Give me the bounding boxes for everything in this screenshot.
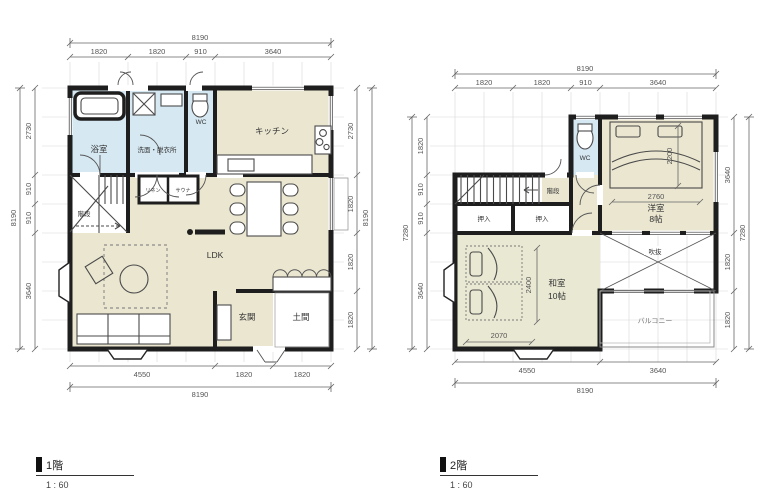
- floor1-room-fills: [70, 88, 331, 349]
- room-label-wc: WC: [196, 119, 207, 126]
- dim-right-total: 7280: [738, 225, 747, 242]
- dim-right-seg: 1820: [346, 312, 355, 329]
- floor2-plan: 8190 1820 1820 910 3640 7280 1820 910 91…: [401, 64, 754, 395]
- chair-icon: [230, 203, 245, 215]
- dim-top-seg: 910: [579, 78, 592, 87]
- bay-window-icon: [107, 349, 148, 359]
- dim-left-seg: 2730: [24, 123, 33, 140]
- room-label-doma: 土間: [292, 312, 309, 322]
- vanity-icon: [161, 94, 182, 106]
- room-label-ldk: LDK: [207, 250, 224, 260]
- floor2-legend: 2階 1 : 60: [440, 457, 538, 490]
- bedroom-window-icon: [664, 115, 702, 120]
- floor2-legend-scale: 1 : 60: [450, 480, 473, 490]
- dim-top-seg: 3640: [265, 47, 282, 56]
- chair-icon: [230, 222, 245, 234]
- room-label-wc: WC: [580, 155, 591, 162]
- room-label-stairs: 階段: [78, 209, 92, 218]
- dining-table-icon: [247, 182, 281, 236]
- closet-label-sauna: サウナ: [175, 187, 190, 194]
- floor2-legend-label: 2階: [450, 458, 467, 472]
- dim-left-seg: 910: [416, 212, 425, 225]
- chair-icon: [283, 203, 298, 215]
- floor1-legend-scale: 1 : 60: [46, 480, 69, 490]
- dim-top-total: 8190: [577, 64, 594, 73]
- dim-right-seg: 3640: [723, 167, 732, 184]
- dim-bottom-total: 8190: [192, 390, 209, 399]
- room-label-kitchen: キッチン: [255, 126, 289, 136]
- dim-top-seg: 1820: [149, 47, 166, 56]
- legend-marker: [440, 457, 446, 472]
- dim-futon-width: 2070: [491, 331, 508, 340]
- room-label-void: 吹抜: [649, 247, 663, 256]
- hall-floor: [571, 175, 600, 233]
- kitchen-window-icon: [252, 86, 304, 91]
- dim-futon-length: 2400: [524, 277, 533, 294]
- dim-right-seg: 1820: [723, 312, 732, 329]
- room-label-entrance: 玄関: [238, 312, 255, 322]
- dim-bed-width: 2760: [648, 192, 665, 201]
- wc-window-icon: [576, 115, 595, 120]
- dim-left-seg: 3640: [24, 283, 33, 300]
- dim-bottom-seg: 3640: [650, 366, 667, 375]
- dim-bottom-seg: 4550: [519, 366, 536, 375]
- chair-icon: [230, 184, 245, 196]
- dim-left-total: 8190: [9, 210, 18, 227]
- chair-icon: [283, 222, 298, 234]
- closet-label-linen: リネン: [145, 188, 160, 194]
- dim-left-seg: 1820: [416, 138, 425, 155]
- dim-bottom-seg: 1820: [236, 370, 253, 379]
- floorplan-drawing: 8190 1820 1820 910 3640 8190 2730 910 91…: [0, 0, 766, 500]
- entry-storage-icon: [217, 305, 231, 340]
- dim-top-seg: 910: [194, 47, 207, 56]
- dim-top-seg: 1820: [91, 47, 108, 56]
- chair-icon: [283, 184, 298, 196]
- dim-left-seg: 3640: [416, 283, 425, 300]
- closet-label-oshiire: 押入: [536, 214, 550, 223]
- bay-window-icon: [444, 262, 455, 303]
- room-label-western-size: 8帖: [649, 214, 663, 224]
- dim-right-seg: 1820: [723, 254, 732, 271]
- dim-right-seg: 1820: [346, 254, 355, 271]
- dim-bottom-seg: 1820: [294, 370, 311, 379]
- bath-window-icon: [68, 98, 73, 135]
- room-label-western: 洋室: [647, 203, 665, 213]
- dim-bed-length: 2200: [665, 148, 674, 165]
- dim-left-seg: 910: [24, 183, 33, 196]
- dim-top-total: 8190: [192, 33, 209, 42]
- kitchen-side-window-icon: [329, 96, 334, 130]
- closet-label-oshiire: 押入: [478, 214, 492, 223]
- room-label-japanese-size: 10帖: [548, 291, 566, 301]
- room-label-bath: 浴室: [90, 144, 108, 154]
- bedroom-side-window-icon: [714, 152, 719, 202]
- dim-right-total: 8190: [361, 210, 370, 227]
- dim-right-seg: 1820: [346, 196, 355, 213]
- room-label-japanese: 和室: [548, 278, 566, 288]
- room-label-balcony: バルコニー: [638, 317, 673, 325]
- casement-window-icon: [118, 72, 203, 85]
- floorplan-canvas: 8190 1820 1820 910 3640 8190 2730 910 91…: [0, 0, 766, 500]
- ldk-window-icon: [329, 178, 334, 230]
- floor1-plan: 8190 1820 1820 910 3640 8190 2730 910 91…: [9, 33, 377, 399]
- dim-top-seg: 3640: [650, 78, 667, 87]
- room-label-stairs: 階段: [547, 186, 561, 195]
- bay-window-icon: [513, 349, 554, 359]
- dim-left-seg: 910: [24, 212, 33, 225]
- sofa-icon: [77, 314, 170, 344]
- bathtub-icon: [75, 93, 124, 119]
- floor1-legend-label: 1階: [46, 458, 63, 472]
- dim-left-total: 7280: [401, 225, 410, 242]
- pillar-icon: [187, 229, 193, 235]
- room-label-washroom: 洗面・脱衣所: [138, 145, 178, 154]
- legend-marker: [36, 457, 42, 472]
- dim-left-seg: 910: [416, 183, 425, 196]
- dim-top-seg: 1820: [476, 78, 493, 87]
- floor1-legend: 1階 1 : 60: [36, 457, 134, 490]
- dim-bottom-seg: 4550: [134, 370, 151, 379]
- dim-right-seg: 2730: [346, 123, 355, 140]
- bedroom-window-icon: [618, 115, 656, 120]
- bay-window-icon: [59, 262, 70, 303]
- dim-bottom-total: 8190: [577, 386, 594, 395]
- dim-top-seg: 1820: [534, 78, 551, 87]
